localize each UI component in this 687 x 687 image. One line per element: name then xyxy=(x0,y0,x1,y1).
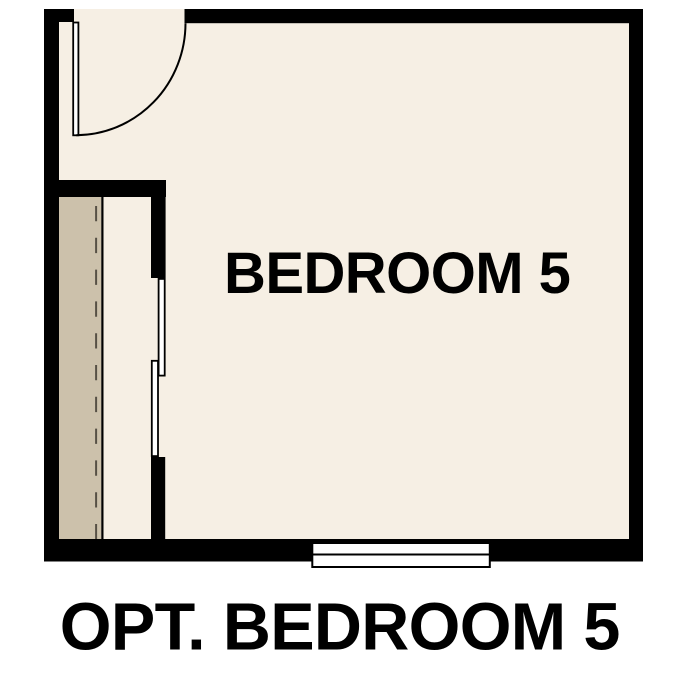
svg-text:BEDROOM 5: BEDROOM 5 xyxy=(224,241,570,306)
svg-text:OPT. BEDROOM 5: OPT. BEDROOM 5 xyxy=(60,591,620,665)
